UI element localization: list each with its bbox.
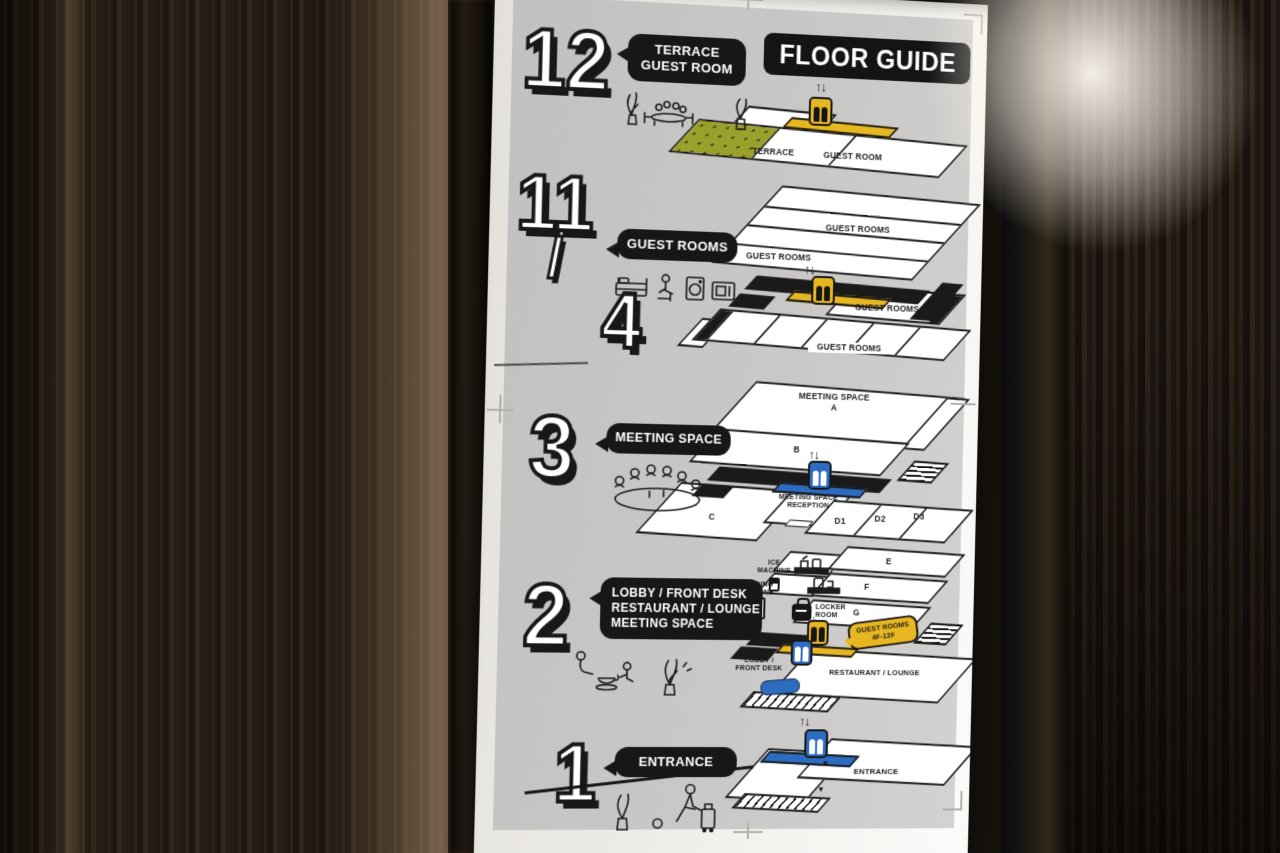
entrance-traveler-icon (605, 777, 737, 834)
plan-label-d1: D1 (828, 516, 852, 527)
person-icon (795, 647, 801, 662)
person-icon (819, 627, 825, 642)
person-icon (811, 627, 817, 642)
label-line: RECEPTION (770, 502, 847, 512)
floor-guide-sign: FLOOR GUIDE 12 TERRACE GUEST ROOM ↑↓ (473, 0, 987, 853)
person-icon (824, 286, 830, 301)
plan-label-d3: D3 (907, 511, 930, 522)
wood-panel-right (1066, 0, 1280, 853)
elevator-badge-icon (811, 276, 835, 306)
entry-arrow-icon: ▼ (817, 785, 825, 794)
plan-label-e: E (879, 556, 899, 567)
stairs-icon (896, 461, 949, 484)
canopy-hatch-area (731, 793, 831, 813)
elevator-arrows-icon: ↑↓ (804, 261, 815, 276)
person-icon (809, 739, 815, 754)
entry-arrow-icon: ▼ (821, 759, 829, 768)
elevator-arrows-icon: ↑↓ (808, 447, 819, 462)
page-title: FLOOR GUIDE (779, 39, 956, 79)
person-icon (816, 286, 822, 301)
floor-number-slash: / (547, 232, 563, 284)
bubble-line: LOBBY / FRONT DESK (612, 585, 748, 602)
floor-number-2: 2 (522, 574, 570, 655)
speech-bubble-11-4: GUEST ROOMS (617, 228, 738, 263)
plan-label-lobby: LOBBY / FRONT DESK (727, 657, 791, 674)
wood-shadow (1066, 299, 1280, 853)
stairs-icon (913, 623, 964, 646)
speech-bubble-2: LOBBY / FRONT DESK RESTAURANT / LOUNGE M… (600, 577, 763, 640)
speech-bubble-1: ENTRANCE (614, 747, 737, 778)
bubble-line: RESTAURANT / LOUNGE (611, 601, 760, 618)
label-line: MACHINE (743, 568, 804, 577)
plan-label-entrance: ENTRANCE (837, 767, 915, 777)
person-icon (813, 107, 819, 122)
plan-label-f: F (857, 582, 877, 593)
plan-label-ice-machine: ICE MACHINE (743, 559, 805, 577)
person-icon (821, 107, 827, 122)
person-icon (813, 471, 819, 486)
person-icon (817, 739, 823, 754)
guest-room-amenities-icon (612, 263, 739, 310)
plan-label-reception: MEETING SPACE RECEPTION (770, 494, 847, 512)
photo-scene: FLOOR GUIDE 12 TERRACE GUEST ROOM ↑↓ (0, 0, 1280, 853)
wood-panel-left (0, 0, 462, 853)
elevator-arrows-icon: ↑↓ (799, 713, 810, 728)
plan-label-d2: D2 (868, 513, 892, 524)
bubble-line: GUEST ROOMS (627, 236, 728, 256)
meeting-table-icon (601, 452, 715, 517)
elevator-badge-icon (808, 96, 832, 126)
wood-grain-highlight (50, 0, 92, 853)
floor-plan-1: ↑↓ ENTRANCE ▼ ▼ (727, 709, 964, 839)
elevator-badge-icon (804, 729, 828, 758)
floor-number-3: 3 (528, 406, 576, 487)
person-icon (802, 647, 808, 662)
bubble-line: GUEST ROOM (641, 57, 733, 78)
lounge-amenities-icon (568, 644, 705, 700)
elevator-badge-icon (791, 640, 813, 666)
speech-bubble-12: TERRACE GUEST ROOM (627, 33, 746, 86)
person-icon (820, 471, 826, 486)
tag-line: 4F-12F (872, 631, 896, 643)
elevator-badge-icon (808, 461, 832, 490)
speech-bubble-3: MEETING SPACE (606, 423, 731, 456)
plan-label-restaurant: RESTAURANT / LOUNGE (816, 668, 933, 678)
plan-label-b: B (787, 444, 807, 455)
plan-label-locker-room: LOCKER ROOM (815, 604, 858, 621)
elevator-arrows-icon: ↑↓ (815, 79, 826, 94)
bubble-line: MEETING SPACE (611, 616, 714, 632)
terrace-amenities-icon (620, 85, 755, 131)
label-line: FRONT DESK (727, 665, 790, 674)
sign-frame-right (1002, 0, 1068, 853)
floor-number-1: 1 (553, 737, 597, 812)
plan-label-meeting-space-a: MEETING SPACE A (790, 390, 879, 414)
plan-label-guest-rooms-4: GUEST ROOMS (808, 341, 890, 354)
floor-number-12: 12 (521, 20, 610, 101)
bubble-line: MEETING SPACE (615, 430, 722, 448)
bubble-line: ENTRANCE (638, 754, 713, 770)
wood-light-band (326, 0, 462, 853)
